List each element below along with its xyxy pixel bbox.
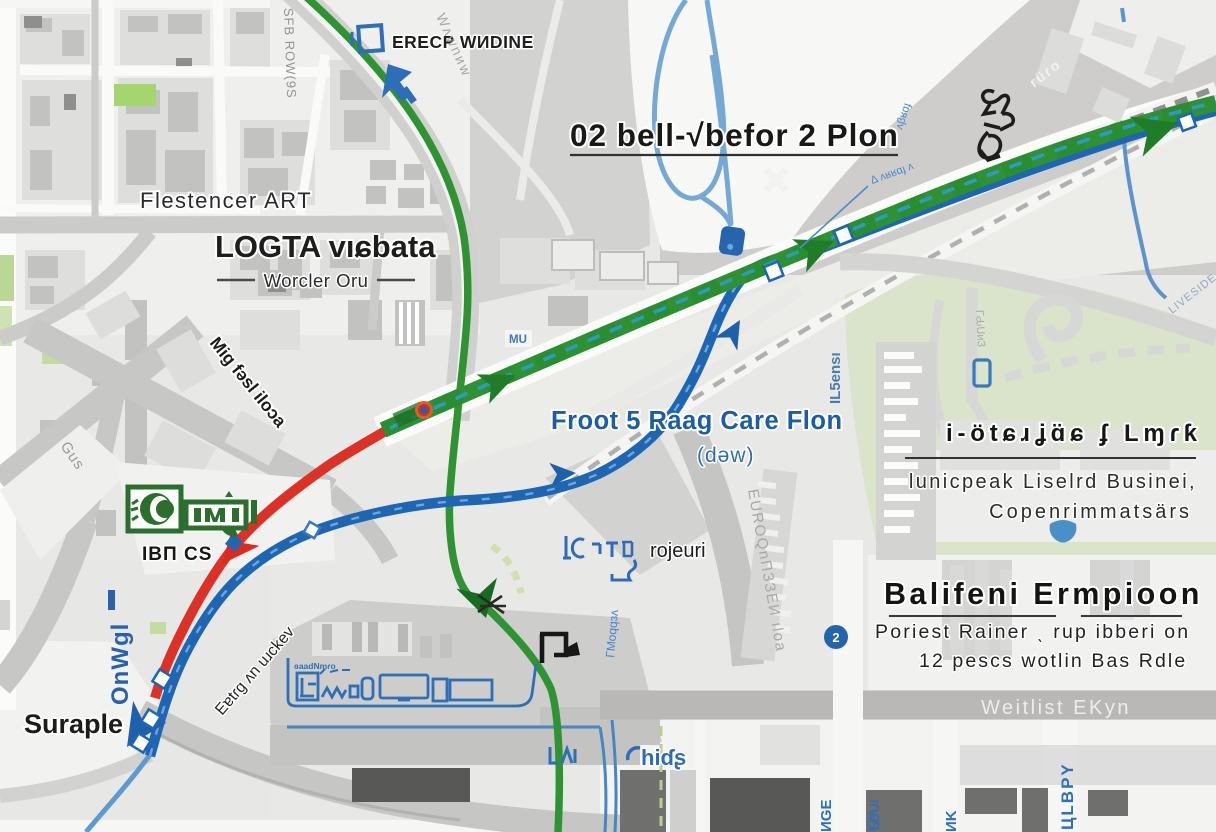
svg-text:12 pescs wotlin Bas Rdle: 12 pescs wotlin Bas Rdle [919,650,1187,672]
svg-text:IBΠ CS: IBΠ CS [142,544,212,565]
svg-text:ГԂUᴎЗ: ГԂUᴎЗ [973,310,987,348]
svg-text:SFB ROW(9S: SFB ROW(9S [281,8,299,99]
svg-text:OnWgl: OnWgl [107,623,134,705]
svg-text:IL5ensı: IL5ensı [827,352,844,404]
svg-text:hiɗʂ: hiɗʂ [641,745,686,770]
svg-text:ИK: ИK [943,810,960,832]
svg-text:MU: MU [509,334,527,346]
svg-text:rojeuri: rojeuri [650,540,706,562]
svg-text:lunicpeak Liselrd Businei,: lunicpeak Liselrd Businei, [909,471,1197,493]
svg-text:Worcler Oru: Worcler Oru [264,270,369,291]
svg-text:Ϲopenrimmatsärs: Ϲopenrimmatsärs [989,501,1192,523]
svg-text:ЦLBPY: ЦLBPY [1058,762,1077,830]
svg-text:(dəw): (dəw) [697,444,755,467]
svg-text:Flestencer ART: Flestencer ART [140,188,312,213]
svg-text:LOGTA vıɕbata: LOGTA vıɕbata [215,229,436,264]
svg-text:Balifeni Ermpioon: Balifeni Ermpioon [884,577,1203,611]
svg-text:ИGE: ИGE [818,800,835,832]
svg-text:Froot 5 Raag Care Flon: Froot 5 Raag Care Flon [551,407,843,435]
svg-text:i-ötɕɹʝɑ̈ɕ ʄ Lɱɾƙ: i-ötɕɹʝɑ̈ɕ ʄ Lɱɾƙ [946,420,1202,447]
svg-text:Suraple: Suraple [24,709,123,739]
svg-text:IQU: IQU [866,811,878,831]
svg-text:Weitlist EKyn: Weitlist EKyn [981,697,1131,719]
svg-text:02 bell-√befor 2 Plon: 02 bell-√befor 2 Plon [570,117,899,153]
svg-text:ɞaadNmɾo: ɞaadNmɾo [294,661,336,671]
svg-text:2: 2 [832,630,839,645]
svg-text:Poriest Rainer ˎ rup ibberi on: Poriest Rainer ˎ rup ibberi on [875,621,1190,643]
